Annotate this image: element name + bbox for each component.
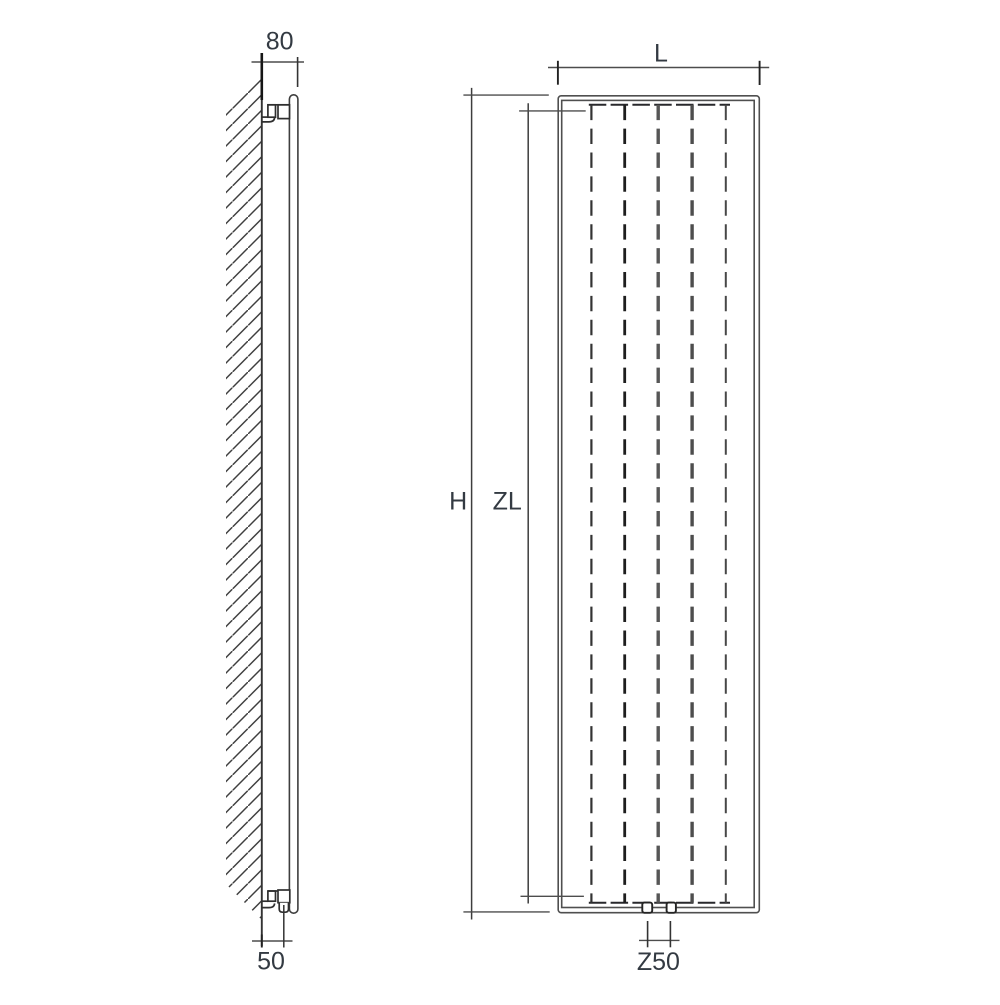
svg-text:L: L [654,40,668,68]
svg-text:50: 50 [257,948,285,976]
svg-text:Z50: Z50 [637,948,680,976]
svg-text:ZL: ZL [493,488,522,516]
svg-text:80: 80 [266,27,294,55]
svg-text:H: H [449,487,467,515]
